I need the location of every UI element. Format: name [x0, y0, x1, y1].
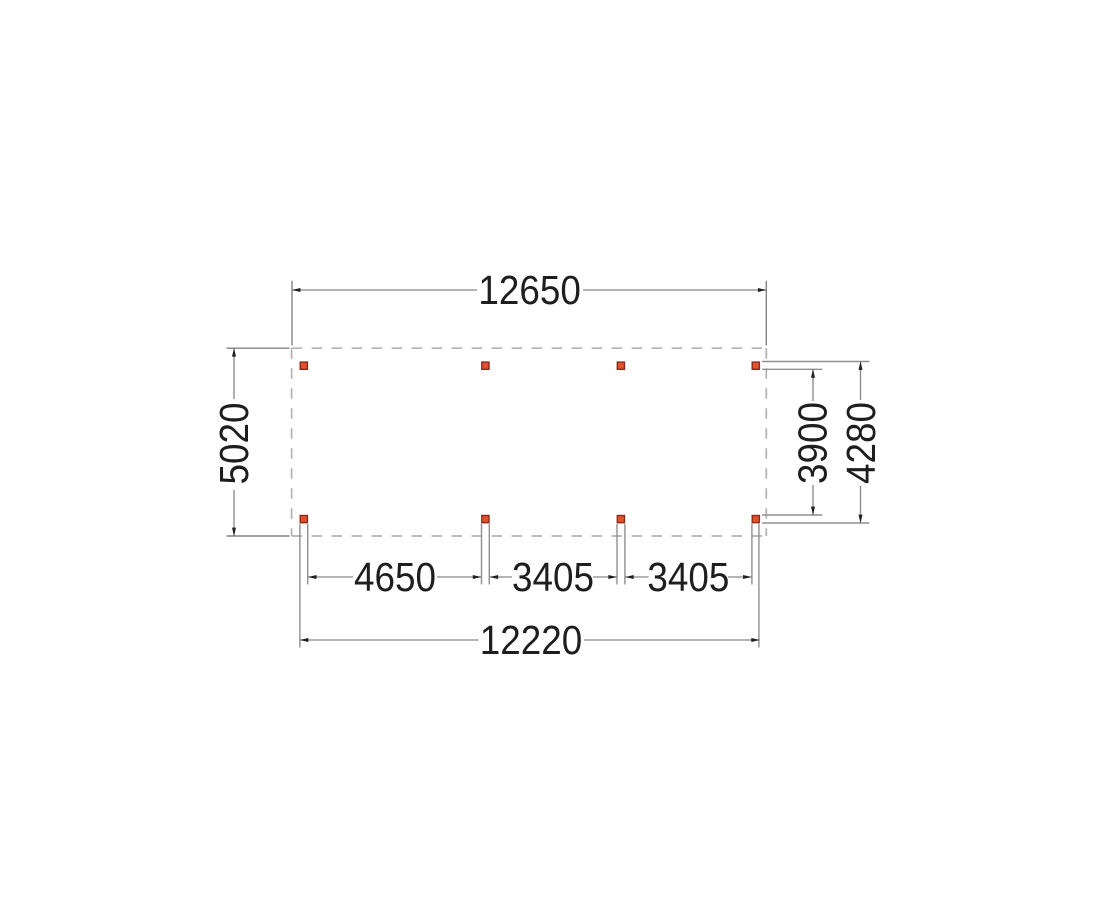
svg-text:12650: 12650	[478, 268, 580, 313]
svg-text:5020: 5020	[212, 403, 257, 485]
svg-text:12220: 12220	[480, 618, 582, 663]
svg-text:4280: 4280	[839, 402, 884, 484]
svg-text:3405: 3405	[647, 555, 729, 600]
svg-text:4650: 4650	[354, 555, 436, 600]
svg-text:3405: 3405	[512, 555, 594, 600]
svg-text:3900: 3900	[791, 402, 836, 484]
